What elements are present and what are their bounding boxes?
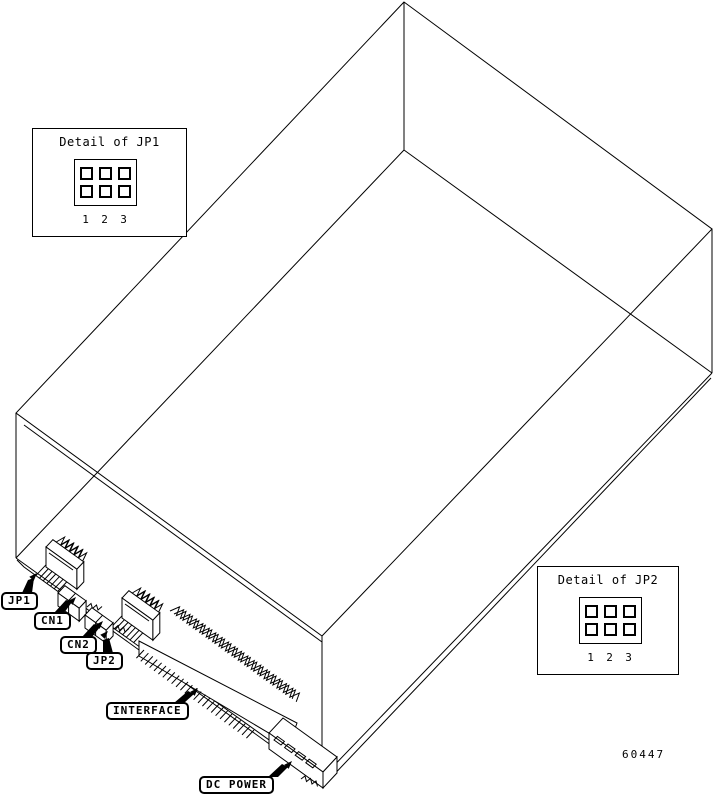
dc-power-connector [269,718,337,788]
chassis-top-face [16,2,712,636]
jp1-pin-number-1: 1 [79,213,92,226]
jp1-jumper-pin [80,185,93,198]
jp1-jumper-pin [118,185,131,198]
callout-jp1: JP1 [1,592,38,610]
detail-box-jp2-title: Detail of JP2 [538,573,678,587]
jp1-jumper-pin [99,167,112,180]
jp1-pin-number-2: 2 [98,213,111,226]
jp2-jumper-block [579,597,642,644]
figure-number: 60447 [622,748,665,761]
jp2-pin-number-1: 1 [584,651,597,664]
jp2-jumper-pin [623,605,636,618]
jp2-jumper-pin [604,623,617,636]
jp1-callout-tail [22,578,34,593]
jp2-pin-number-2: 2 [603,651,616,664]
jp2-pin-number-3: 3 [622,651,635,664]
jp2-jumper-pin [604,605,617,618]
callout-cn1: CN1 [34,612,71,630]
chassis-bottom-face [16,150,712,778]
dc-power-callout-tail [268,764,288,777]
callout-jp2: JP2 [86,652,123,670]
jp1-connector [36,537,87,591]
jp2-callout-tail [103,638,113,653]
callout-dc-power: DC POWER [199,776,274,794]
jp2-jumper-pin [585,623,598,636]
interface-connector [136,607,299,745]
jp1-jumper-pin [99,185,112,198]
callout-interface: INTERFACE [106,702,189,720]
jp1-pin-numbers: 1 2 3 [74,213,135,226]
jp1-jumper-block [74,159,137,206]
drive-isometric-drawing [0,0,714,798]
jp1-jumper-pin [80,167,93,180]
jp2-jumper-pin [585,605,598,618]
jp2-connector [112,588,163,642]
detail-box-jp2: Detail of JP2 1 2 3 [537,566,679,675]
jp2-jumper-pin [623,623,636,636]
figure-canvas: Detail of JP1 1 2 3 Detail of JP2 1 2 [0,0,714,798]
jp2-pin-numbers: 1 2 3 [579,651,640,664]
jp1-pin-number-3: 3 [117,213,130,226]
detail-box-jp1: Detail of JP1 1 2 3 [32,128,187,237]
detail-box-jp1-title: Detail of JP1 [33,135,186,149]
jp1-jumper-pin [118,167,131,180]
